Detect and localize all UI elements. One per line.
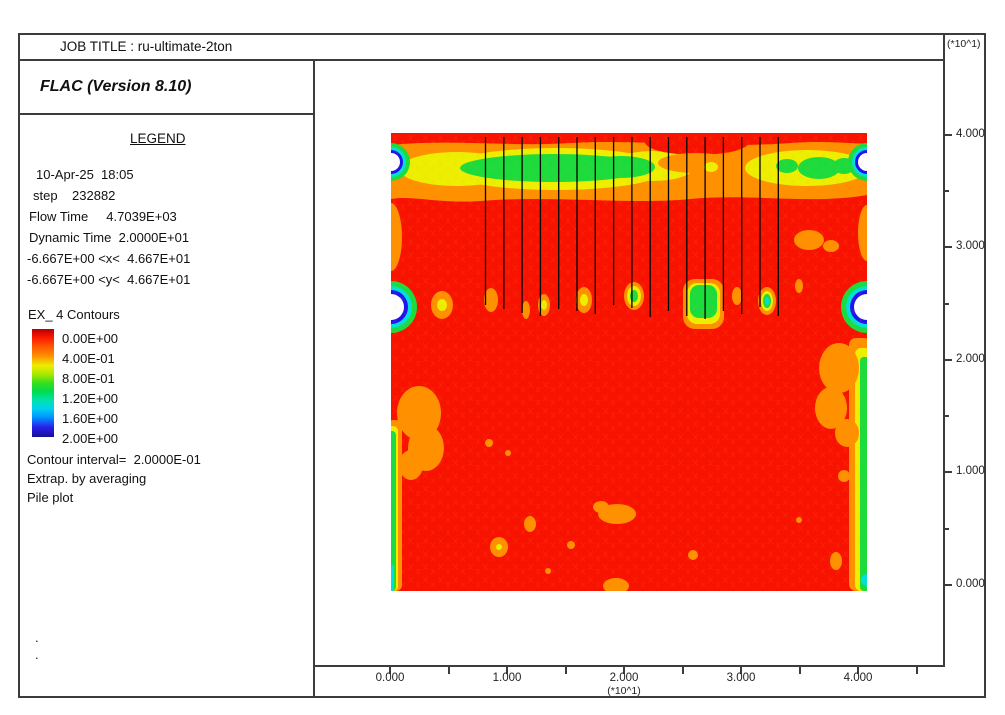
contour-level-2: 8.00E-01: [62, 371, 115, 386]
legend-dot-1: .: [35, 630, 39, 645]
legend-contours-title: EX_ 4 Contours: [28, 307, 120, 322]
y-axis-multiplier: (*10^1): [947, 38, 981, 50]
flac-plot-window: JOB TITLE : ru-ultimate-2ton FLAC (Versi…: [0, 0, 1005, 715]
legend-dynamic-time: Dynamic Time 2.0000E+01: [29, 230, 189, 245]
job-title-divider: [18, 59, 945, 61]
y-axis-tick: [944, 528, 949, 530]
contour-level-0: 0.00E+00: [62, 331, 118, 346]
y-tick-label-1: 3.000: [956, 240, 985, 252]
x-axis-tick: [916, 667, 918, 674]
x-axis-tick: [448, 667, 450, 674]
x-axis-tick: [565, 667, 567, 674]
y-axis-tick: [944, 359, 952, 361]
contour-field: [391, 133, 867, 591]
y-axis-tick: [944, 303, 949, 305]
legend-title: LEGEND: [130, 131, 186, 146]
y-axis-tick: [944, 471, 952, 473]
legend-step: step 232882: [33, 188, 115, 203]
job-title: JOB TITLE : ru-ultimate-2ton: [60, 39, 232, 54]
x-tick-label-2: 2.000: [594, 672, 654, 684]
legend-contour-interval: Contour interval= 2.0000E-01: [27, 452, 201, 467]
contour-level-5: 2.00E+00: [62, 431, 118, 446]
x-axis-tick: [682, 667, 684, 674]
contour-colorbar: [32, 329, 54, 437]
legend-date-time: 10-Apr-25 18:05: [36, 167, 134, 182]
legend-extrapolation: Extrap. by averaging: [27, 471, 146, 486]
right-axis-line: [943, 33, 945, 667]
y-tick-label-0: 4.000: [956, 128, 985, 140]
legend-plot-item: Pile plot: [27, 490, 73, 505]
x-axis-line: [313, 665, 945, 667]
contour-level-3: 1.20E+00: [62, 391, 118, 406]
y-axis-tick: [944, 190, 949, 192]
x-axis-tick: [799, 667, 801, 674]
y-tick-label-3: 1.000: [956, 465, 985, 477]
contour-level-1: 4.00E-01: [62, 351, 115, 366]
y-axis-tick: [944, 246, 952, 248]
y-axis-tick: [944, 584, 952, 586]
legend-y-range: -6.667E+00 <y< 4.667E+01: [27, 272, 190, 287]
y-tick-label-4: 0.000: [956, 578, 985, 590]
contour-plot: [391, 133, 867, 591]
y-tick-label-2: 2.000: [956, 353, 985, 365]
x-tick-label-0: 0.000: [360, 672, 420, 684]
y-axis-tick: [944, 134, 952, 136]
legend-flow-time: Flow Time 4.7039E+03: [29, 209, 177, 224]
x-tick-label-4: 4.000: [828, 672, 888, 684]
app-title: FLAC (Version 8.10): [40, 78, 191, 96]
y-axis-tick: [944, 415, 949, 417]
x-tick-label-1: 1.000: [477, 672, 537, 684]
x-tick-label-3: 3.000: [711, 672, 771, 684]
legend-x-range: -6.667E+00 <x< 4.667E+01: [27, 251, 190, 266]
contour-level-4: 1.60E+00: [62, 411, 118, 426]
legend-panel: LEGEND 10-Apr-25 18:05 step 232882 Flow …: [18, 114, 314, 698]
legend-dot-2: .: [35, 647, 39, 662]
x-axis-multiplier: (*10^1): [594, 685, 654, 697]
